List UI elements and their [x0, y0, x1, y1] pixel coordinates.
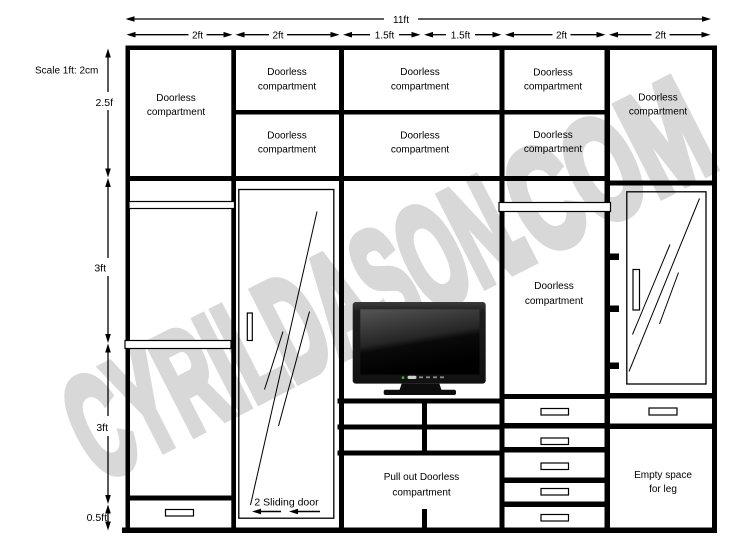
svg-text:compartment: compartment — [391, 82, 450, 93]
svg-text:11ft: 11ft — [393, 15, 409, 26]
svg-text:2ft: 2ft — [272, 31, 283, 42]
svg-text:3ft: 3ft — [94, 263, 106, 275]
svg-text:Scale 1ft: 2cm: Scale 1ft: 2cm — [35, 66, 98, 77]
svg-text:Doorless: Doorless — [638, 93, 677, 104]
svg-text:compartment: compartment — [258, 145, 317, 156]
svg-text:compartment: compartment — [392, 488, 451, 499]
svg-text:compartment: compartment — [391, 145, 450, 156]
svg-text:compartment: compartment — [524, 144, 583, 155]
svg-text:compartment: compartment — [258, 82, 317, 93]
svg-text:Doorless: Doorless — [267, 131, 306, 142]
svg-text:compartment: compartment — [147, 107, 206, 118]
svg-text:1.5ft: 1.5ft — [375, 31, 395, 42]
svg-text:2.5f: 2.5f — [95, 97, 113, 109]
svg-text:2ft: 2ft — [655, 31, 666, 42]
svg-text:Doorless: Doorless — [533, 68, 572, 79]
svg-text:2ft: 2ft — [556, 31, 567, 42]
svg-text:2ft: 2ft — [192, 31, 203, 42]
svg-text:Doorless: Doorless — [400, 67, 439, 78]
svg-text:Doorless: Doorless — [400, 131, 439, 142]
svg-text:Doorless: Doorless — [534, 281, 573, 292]
svg-text:Empty space: Empty space — [634, 470, 692, 481]
svg-text:for leg: for leg — [649, 484, 677, 495]
svg-text:compartment: compartment — [525, 296, 584, 307]
svg-text:1.5ft: 1.5ft — [451, 31, 471, 42]
svg-text:Doorless: Doorless — [533, 130, 572, 141]
svg-text:3ft: 3ft — [96, 422, 108, 434]
svg-text:Pull out Doorless: Pull out Doorless — [384, 472, 460, 483]
svg-text:Doorless: Doorless — [156, 93, 195, 104]
svg-text:compartment: compartment — [524, 82, 583, 93]
svg-text:2 Sliding door: 2 Sliding door — [254, 497, 319, 509]
svg-text:compartment: compartment — [629, 107, 688, 118]
svg-text:0.5ft: 0.5ft — [87, 512, 108, 524]
svg-text:Doorless: Doorless — [267, 67, 306, 78]
